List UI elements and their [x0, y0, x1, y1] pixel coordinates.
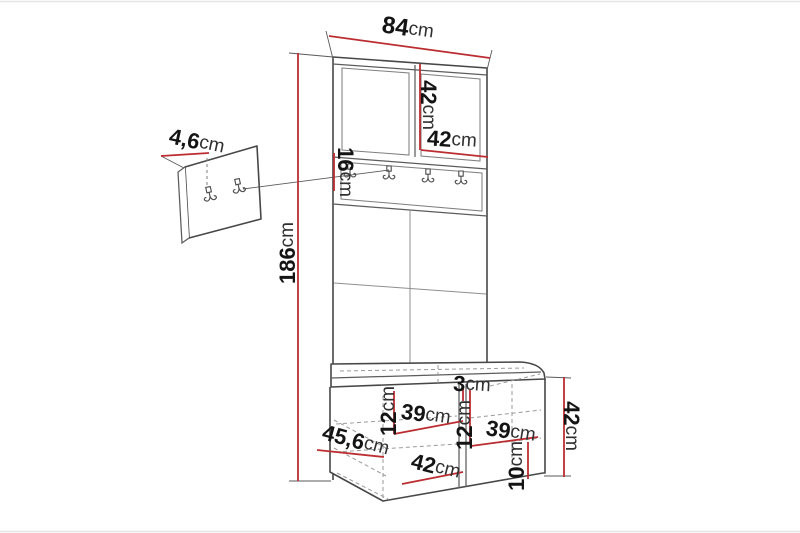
- coat-hook-icon: [422, 169, 434, 182]
- top-cabinet-left-door: [342, 68, 409, 155]
- dimension-label-bench-left-compartment-height: 12cm: [376, 386, 401, 436]
- furniture-dimension-diagram: 84cm 42cm 42cm 4,6cm 16cm 186cm 3cm 12cm…: [0, 0, 800, 533]
- dimension-label-top-door-height: 42cm: [417, 80, 442, 130]
- dimension-label-bench-middle-compartment-height: 12cm: [452, 400, 477, 450]
- panel-to-rail-connector-line: [243, 170, 389, 189]
- dimension-label-total-height: 186cm: [275, 222, 300, 284]
- dimension-label-bench-plinth-height: 10cm: [504, 441, 529, 491]
- dimension-label-seat-pad-thickness: 3cm: [452, 370, 491, 398]
- dimension-label-wall-panel-thickness: 4,6cm: [167, 123, 227, 159]
- dimension-label-hook-rail-height: 16cm: [334, 147, 359, 197]
- diagram-canvas: 84cm 42cm 42cm 4,6cm 16cm 186cm 3cm 12cm…: [0, 0, 800, 533]
- dimension-line-total-width: [329, 36, 490, 58]
- padded-panel-dividers: [334, 211, 486, 363]
- dimension-line-top-door-width: [421, 150, 488, 157]
- dimension-line-wall-panel-thickness: [161, 153, 209, 156]
- wall-panel-front: [185, 146, 261, 238]
- coat-hook-icon: [455, 171, 467, 184]
- hook-rail-panel: [341, 162, 482, 211]
- dimension-label-total-width: 84cm: [380, 11, 435, 45]
- coat-hook-icon: [383, 166, 395, 179]
- dimension-label-bench-height: 42cm: [560, 401, 585, 451]
- dimension-label-top-door-width: 42cm: [426, 125, 477, 153]
